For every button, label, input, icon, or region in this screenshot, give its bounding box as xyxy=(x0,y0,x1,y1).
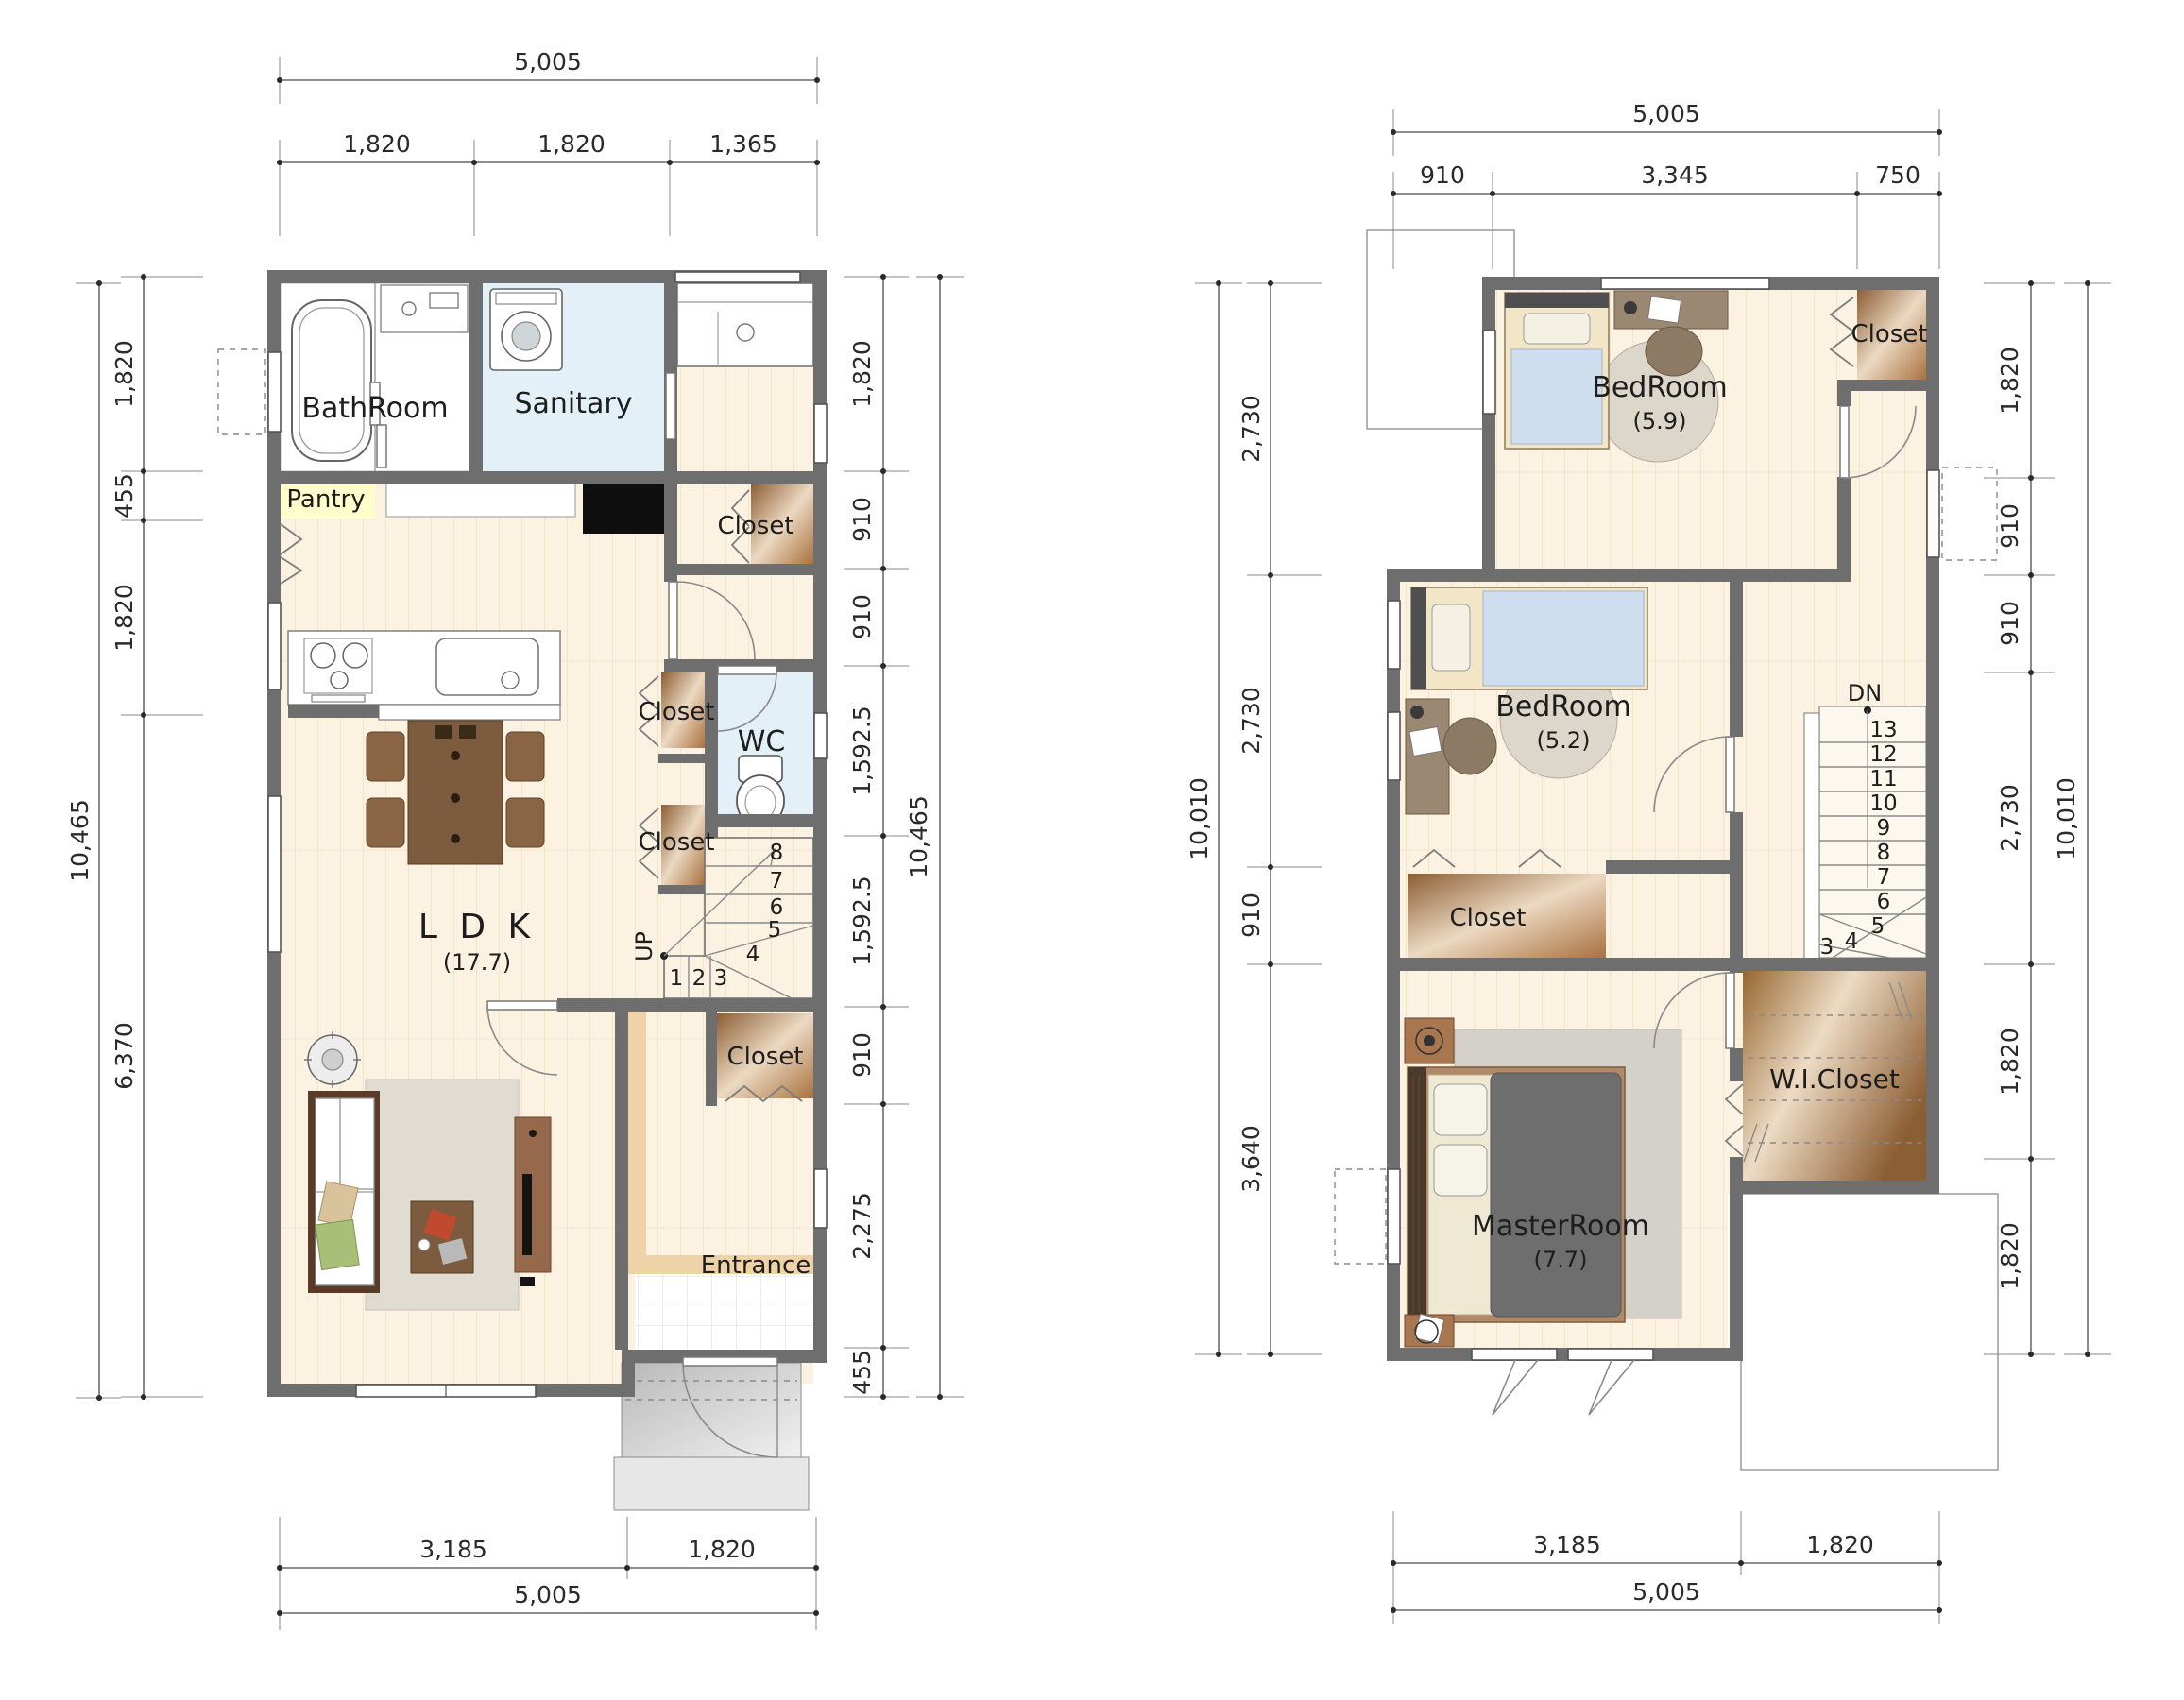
svg-text:2: 2 xyxy=(692,966,707,991)
stair-railing xyxy=(1804,713,1819,960)
svg-text:910: 910 xyxy=(1237,892,1265,938)
svg-text:7: 7 xyxy=(770,869,784,893)
nightstand-icon xyxy=(1405,1314,1454,1347)
svg-text:6: 6 xyxy=(1877,890,1891,914)
svg-text:3,640: 3,640 xyxy=(1237,1125,1265,1193)
room-label-wic: W.I.Closet xyxy=(1769,1063,1900,1095)
step-number: 1 xyxy=(670,966,684,991)
svg-text:910: 910 xyxy=(1996,601,2023,646)
svg-text:3,185: 3,185 xyxy=(419,1536,487,1563)
room-label-pantry: Pantry xyxy=(286,485,365,514)
room-label-wc: WC xyxy=(738,725,786,758)
svg-text:3: 3 xyxy=(714,966,728,991)
svg-text:11: 11 xyxy=(1869,767,1897,791)
svg-text:2,730: 2,730 xyxy=(1237,687,1265,755)
1f-porch xyxy=(622,1363,801,1457)
2f-master-furniture xyxy=(1405,1018,1681,1347)
svg-text:455: 455 xyxy=(111,473,138,518)
svg-text:3,185: 3,185 xyxy=(1533,1531,1601,1558)
dim-1f-top-total: 5,005 xyxy=(514,48,582,76)
room-label-mid-closet-lower: Closet xyxy=(638,828,714,857)
svg-text:1,820: 1,820 xyxy=(688,1536,756,1563)
chair-icon xyxy=(1646,327,1702,376)
svg-text:8: 8 xyxy=(770,841,784,865)
room-label-hall-closet: Closet xyxy=(717,512,793,540)
1f-entrance-tile-floor xyxy=(635,1274,813,1350)
room-label-bathroom: BathRoom xyxy=(301,392,448,425)
step-number: 3 xyxy=(1820,935,1834,960)
room-label-bedroom2: BedRoom xyxy=(1495,690,1631,723)
svg-text:1,365: 1,365 xyxy=(709,130,777,158)
svg-text:3,345: 3,345 xyxy=(1641,161,1709,189)
svg-text:1,820: 1,820 xyxy=(1996,347,2023,415)
svg-text:1,592.5: 1,592.5 xyxy=(848,705,876,795)
refrigerator-icon xyxy=(583,477,664,534)
svg-text:5: 5 xyxy=(768,918,782,943)
2f-roof-outline-bottomright xyxy=(1741,1194,1998,1470)
svg-text:1,820: 1,820 xyxy=(111,584,138,652)
room-label-bedroom1-closet: Closet xyxy=(1851,320,1927,348)
dim-2f-top-total: 5,005 xyxy=(1632,100,1700,127)
tv-board-icon xyxy=(515,1117,551,1286)
svg-text:455: 455 xyxy=(848,1350,876,1395)
dim-2f-right-total: 10,010 xyxy=(2053,777,2080,859)
1f-porch-step xyxy=(614,1457,809,1510)
floor-plan-drawing: BathRoom Sanitary Pantry Closet WC Close… xyxy=(0,0,2184,1700)
single-bed-icon xyxy=(1411,587,1647,689)
second-floor-plan: BedRoom (5.9) Closet BedRoom (5.2) Close… xyxy=(1186,100,2111,1624)
stairs-dn-label: DN xyxy=(1848,680,1882,706)
svg-text:910: 910 xyxy=(1996,503,2023,549)
washing-machine-icon xyxy=(490,289,562,370)
room-label-entrance-closet: Closet xyxy=(726,1043,803,1071)
svg-text:910: 910 xyxy=(848,497,876,542)
svg-text:8: 8 xyxy=(1877,841,1891,865)
svg-text:1,820: 1,820 xyxy=(537,130,606,158)
svg-text:1,820: 1,820 xyxy=(1806,1531,1874,1558)
stairs-up-label: UP xyxy=(631,931,657,961)
svg-text:1,820: 1,820 xyxy=(1996,1028,2023,1096)
room-label-ldk: L D K xyxy=(418,908,536,946)
svg-text:2,275: 2,275 xyxy=(848,1192,876,1260)
dim-1f-bottom-total: 5,005 xyxy=(514,1581,582,1608)
washbasin-icon xyxy=(677,283,813,366)
svg-text:4: 4 xyxy=(746,943,760,967)
svg-text:1,820: 1,820 xyxy=(343,130,411,158)
chair-icon xyxy=(1443,718,1496,774)
svg-text:750: 750 xyxy=(1875,161,1920,189)
room-label-sanitary: Sanitary xyxy=(514,387,632,420)
svg-text:910: 910 xyxy=(848,594,876,639)
sofa-icon xyxy=(308,1091,380,1293)
svg-text:7: 7 xyxy=(1877,865,1891,890)
svg-text:1,820: 1,820 xyxy=(848,340,876,408)
svg-text:1,820: 1,820 xyxy=(1996,1222,2023,1290)
svg-text:6: 6 xyxy=(770,895,784,920)
double-bed-icon xyxy=(1408,1067,1625,1322)
svg-text:9: 9 xyxy=(1877,816,1891,841)
dim-2f-bottom-total: 5,005 xyxy=(1632,1578,1700,1606)
svg-text:2,730: 2,730 xyxy=(1237,395,1265,463)
room-label-mid-closet-upper: Closet xyxy=(638,698,714,726)
room-label-master-area: (7.7) xyxy=(1534,1247,1588,1273)
svg-text:10: 10 xyxy=(1869,791,1897,816)
room-label-entrance: Entrance xyxy=(701,1251,811,1280)
room-label-bedroom2-area: (5.2) xyxy=(1537,727,1591,754)
room-label-bedroom2-closet: Closet xyxy=(1449,904,1526,932)
dim-1f-right-total: 10,465 xyxy=(905,795,932,877)
floor-plan-canvas: BathRoom Sanitary Pantry Closet WC Close… xyxy=(0,0,2184,1700)
room-label-master: MasterRoom xyxy=(1472,1210,1649,1243)
svg-text:1,592.5: 1,592.5 xyxy=(848,875,876,965)
kitchen-counter xyxy=(288,631,560,720)
room-label-bedroom1: BedRoom xyxy=(1592,371,1728,404)
room-label-ldk-area: (17.7) xyxy=(443,949,511,976)
first-floor-plan: BathRoom Sanitary Pantry Closet WC Close… xyxy=(66,48,964,1630)
coffee-table-icon xyxy=(411,1201,473,1273)
dim-2f-left-total: 10,010 xyxy=(1186,777,1213,859)
svg-text:13: 13 xyxy=(1869,718,1897,742)
svg-text:4: 4 xyxy=(1845,929,1859,954)
svg-text:12: 12 xyxy=(1869,742,1897,767)
living-rug xyxy=(366,1079,519,1310)
2f-staircase xyxy=(1804,706,1926,960)
1f-entrance-step-vertical xyxy=(625,1003,646,1274)
nightstand-icon xyxy=(1405,1018,1454,1063)
svg-text:1,820: 1,820 xyxy=(111,340,138,408)
room-label-bedroom1-area: (5.9) xyxy=(1633,408,1687,434)
svg-text:6,370: 6,370 xyxy=(111,1022,138,1090)
svg-text:5: 5 xyxy=(1871,914,1885,939)
svg-text:2,730: 2,730 xyxy=(1996,784,2023,852)
svg-text:910: 910 xyxy=(1420,161,1465,189)
dim-1f-left-total: 10,465 xyxy=(66,799,94,881)
svg-text:910: 910 xyxy=(848,1032,876,1078)
